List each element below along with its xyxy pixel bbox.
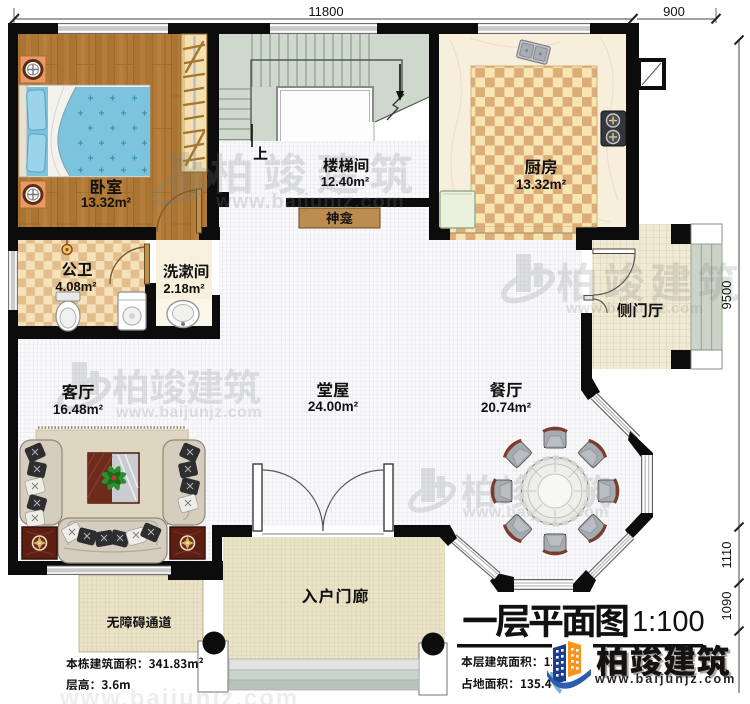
svg-text:9500: 9500: [719, 281, 734, 310]
svg-text:1110: 1110: [719, 542, 734, 569]
svg-text:1:100: 1:100: [632, 606, 705, 638]
svg-text:11800: 11800: [308, 4, 343, 19]
svg-text:4.08m²: 4.08m²: [55, 279, 97, 294]
svg-text:20.74m²: 20.74m²: [481, 400, 532, 415]
svg-text:2.18m²: 2.18m²: [163, 281, 205, 296]
svg-text:13.32m²: 13.32m²: [81, 195, 132, 210]
svg-text:www.baijunjz.com: www.baijunjz.com: [215, 191, 405, 213]
svg-text:13.32m²: 13.32m²: [516, 177, 567, 192]
svg-text:16.48m²: 16.48m²: [53, 402, 104, 417]
svg-text:www.baijunjz.com: www.baijunjz.com: [594, 672, 736, 686]
svg-text:24.00m²: 24.00m²: [308, 399, 359, 414]
svg-text:www.baijunjz.com: www.baijunjz.com: [115, 404, 262, 421]
svg-text:12.40m²: 12.40m²: [321, 174, 370, 189]
svg-text:900: 900: [663, 4, 685, 19]
svg-text:1090: 1090: [719, 592, 734, 621]
